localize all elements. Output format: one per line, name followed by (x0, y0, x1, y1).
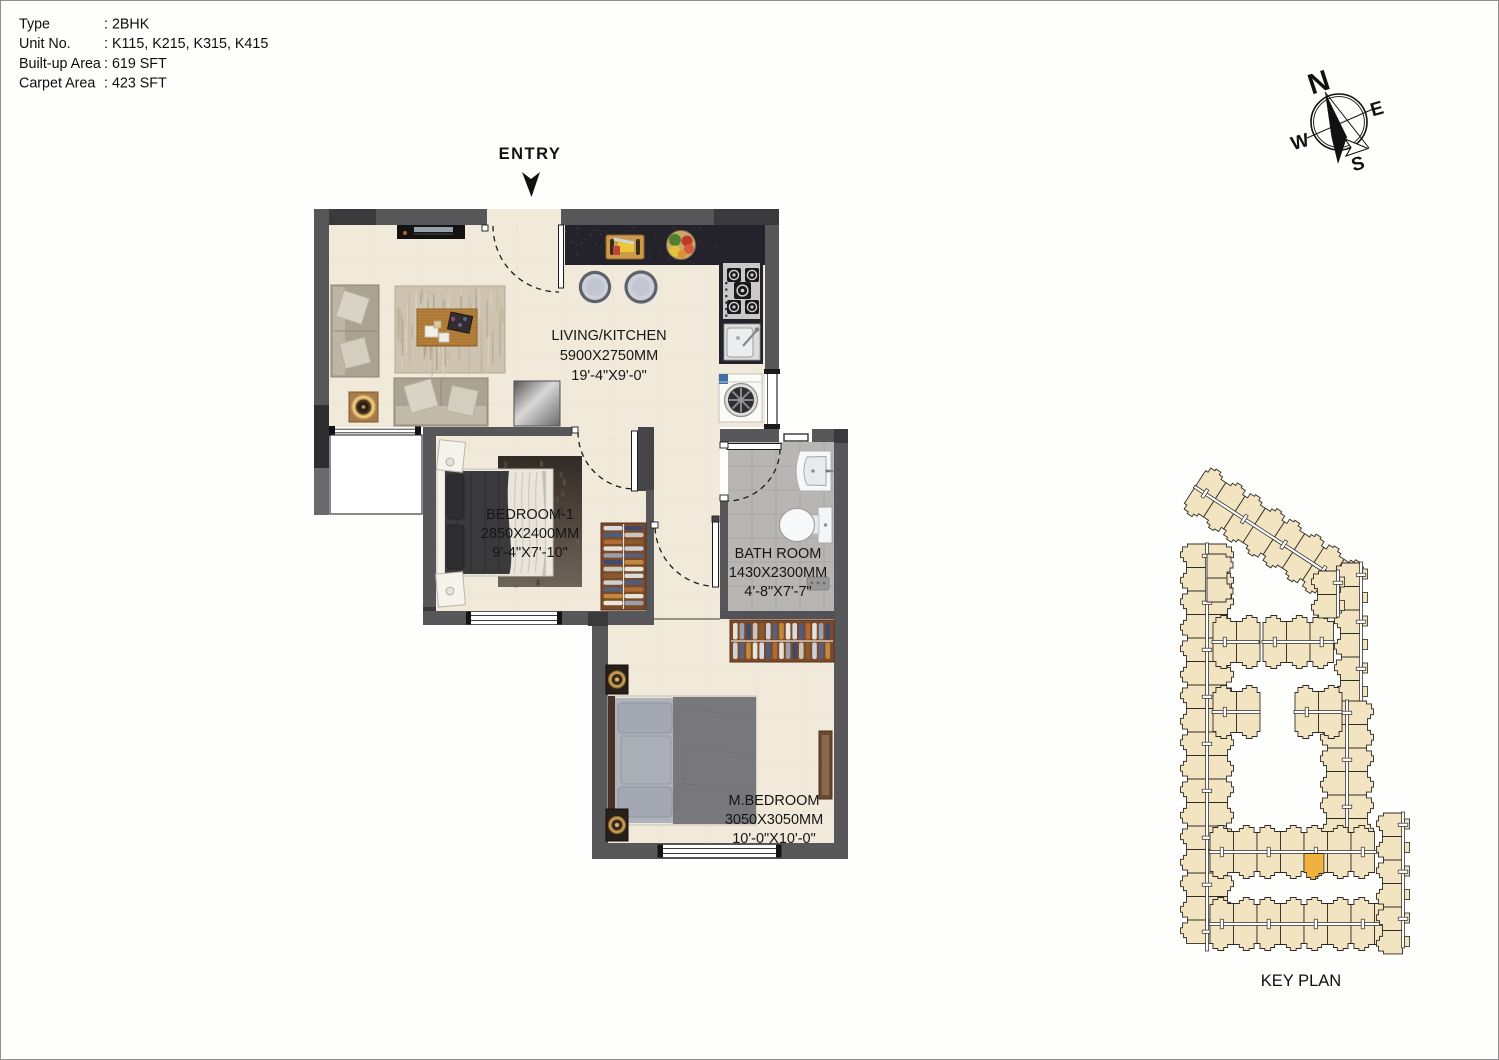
svg-text:Type: Type (19, 17, 50, 33)
svg-text:: K115, K215, K315, K415: : K115, K215, K315, K415 (104, 36, 268, 52)
svg-text:1430X2300MM: 1430X2300MM (729, 565, 827, 581)
svg-text:3050X3050MM: 3050X3050MM (725, 812, 823, 828)
svg-text:10'-0"X10'-0": 10'-0"X10'-0" (732, 831, 816, 847)
svg-text:19'-4"X9'-0": 19'-4"X9'-0" (571, 368, 646, 384)
svg-text:BEDROOM-1: BEDROOM-1 (486, 507, 574, 523)
svg-text:Unit No.: Unit No. (19, 36, 71, 52)
svg-text:Built-up Area: Built-up Area (19, 56, 101, 72)
svg-text:: 2BHK: : 2BHK (104, 17, 150, 33)
svg-text:: 619 SFT: : 619 SFT (104, 56, 167, 72)
svg-text:N: N (1304, 65, 1334, 102)
svg-text:KEY PLAN: KEY PLAN (1261, 972, 1341, 990)
svg-text:9'-4"X7'-10": 9'-4"X7'-10" (492, 545, 567, 561)
svg-text:W: W (1289, 130, 1312, 155)
svg-text:4'-8"X7'-7": 4'-8"X7'-7" (744, 584, 811, 600)
svg-text:: 423 SFT: : 423 SFT (104, 76, 167, 92)
svg-text:BATH ROOM: BATH ROOM (735, 546, 822, 562)
svg-text:5900X2750MM: 5900X2750MM (560, 348, 658, 364)
svg-text:M.BEDROOM: M.BEDROOM (728, 793, 819, 809)
svg-text:LIVING/KITCHEN: LIVING/KITCHEN (551, 328, 666, 344)
svg-text:S: S (1349, 153, 1367, 177)
svg-text:2850X2400MM: 2850X2400MM (481, 526, 579, 542)
svg-text:ENTRY: ENTRY (499, 145, 562, 163)
svg-text:E: E (1368, 98, 1386, 122)
svg-text:Carpet Area: Carpet Area (19, 76, 95, 92)
